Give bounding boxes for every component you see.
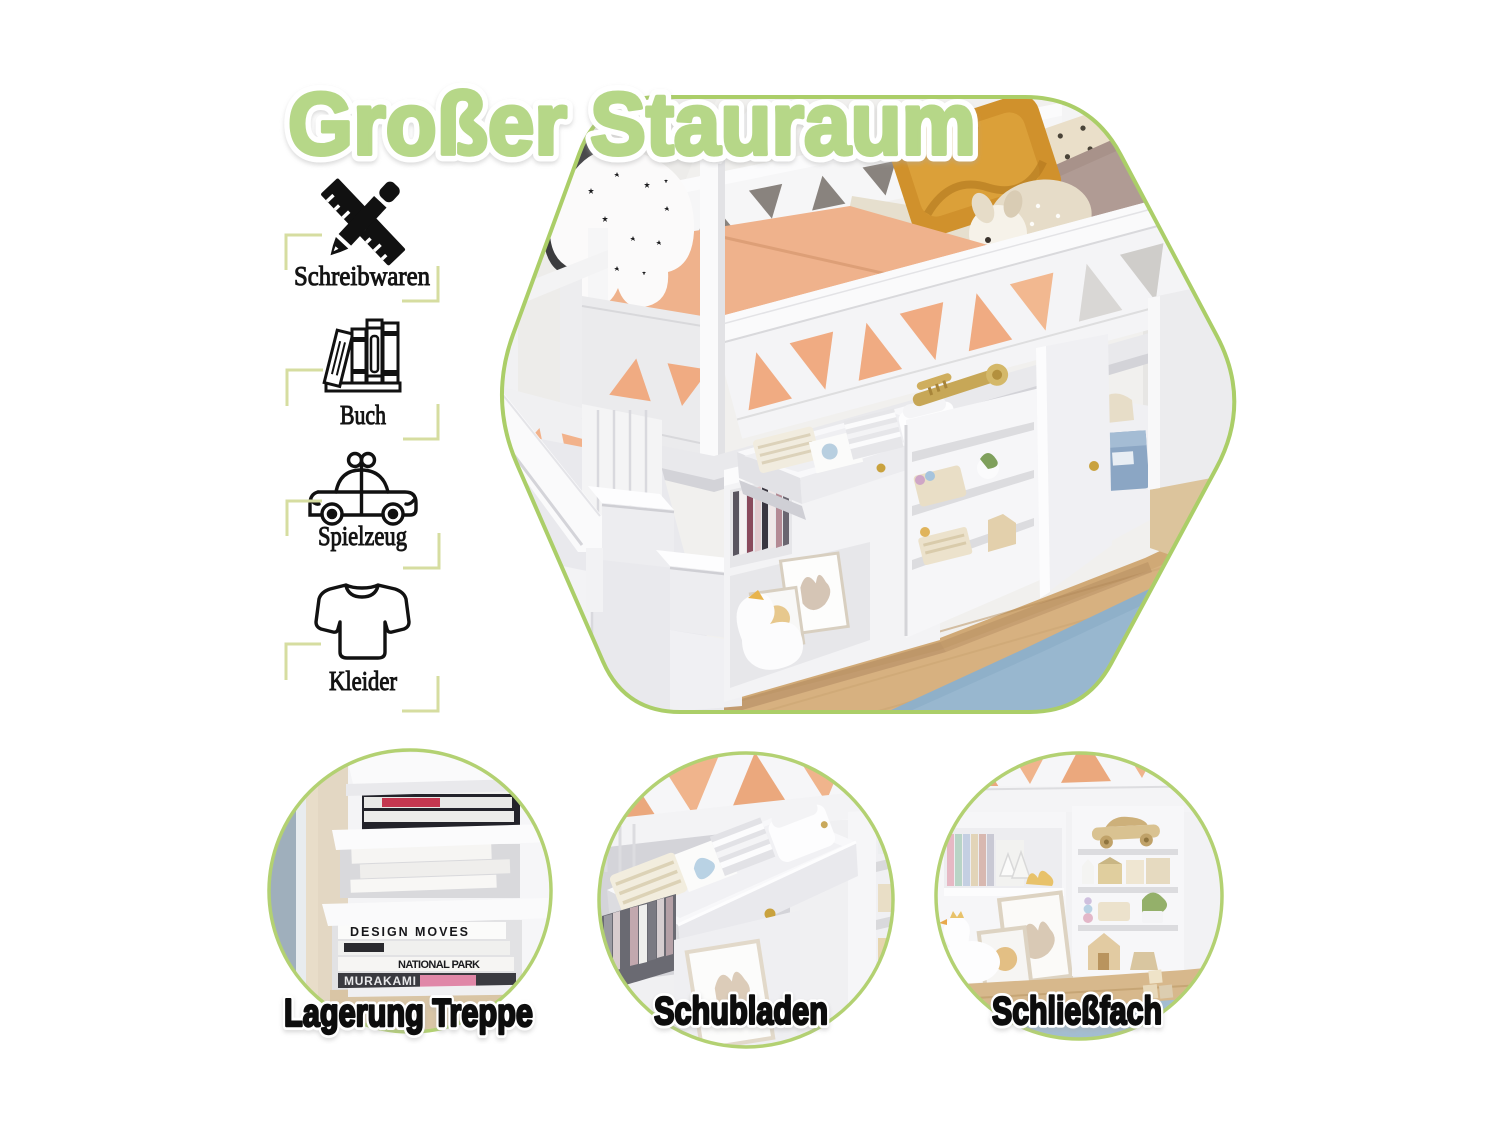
svg-text:Spielzeug: Spielzeug <box>318 521 407 551</box>
svg-text:Schubladen: Schubladen <box>654 990 828 1033</box>
svg-text:Schließfach: Schließfach <box>992 990 1162 1033</box>
svg-text:Großer Stauraum: Großer Stauraum <box>288 74 976 173</box>
svg-text:Kleider: Kleider <box>329 666 397 696</box>
svg-text:Schreibwaren: Schreibwaren <box>294 261 430 291</box>
svg-text:NATIONAL PARK: NATIONAL PARK <box>398 959 480 971</box>
svg-text:DESIGN MOVES: DESIGN MOVES <box>350 925 468 939</box>
svg-text:Lagerung Treppe: Lagerung Treppe <box>284 992 533 1035</box>
svg-text:Buch: Buch <box>340 400 386 430</box>
svg-text:MURAKAMI: MURAKAMI <box>344 974 416 988</box>
